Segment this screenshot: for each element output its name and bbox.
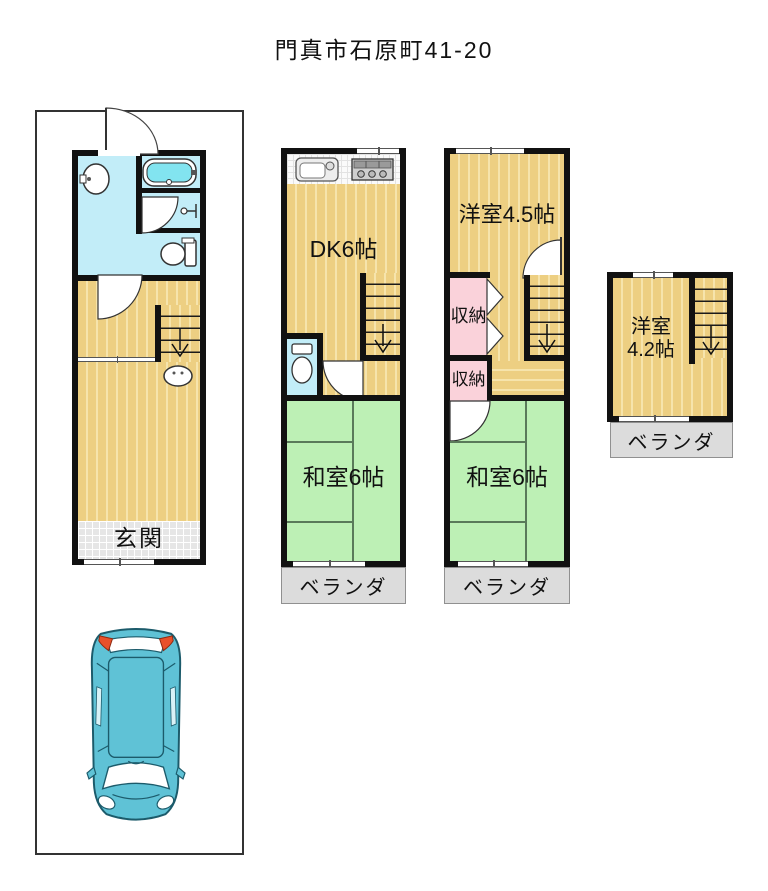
stairs-down-arrow-icon bbox=[169, 328, 191, 358]
floor4-balcony: ベランダ bbox=[610, 422, 733, 458]
door-arc-icon bbox=[142, 197, 178, 233]
folding-door-icon bbox=[487, 278, 505, 355]
kitchen-sink-icon bbox=[295, 157, 339, 182]
closet-lower-label: 収納 bbox=[450, 370, 487, 390]
balcony-label: ベランダ bbox=[628, 426, 716, 455]
bathtub-icon bbox=[142, 158, 198, 188]
closet-upper-label: 収納 bbox=[450, 306, 487, 327]
page-title: 門真市石原町41-20 bbox=[0, 31, 768, 65]
entrance-label: 玄関 bbox=[78, 525, 200, 551]
washbasin-icon bbox=[80, 162, 110, 196]
floor3-plan: 洋室4.5帖 収納 収納 bbox=[444, 148, 570, 567]
floor1-plan: 玄関 bbox=[72, 150, 206, 565]
floor4-plan: 洋室 4.2帖 bbox=[607, 272, 733, 422]
door-arc-icon bbox=[450, 401, 490, 441]
toilet-icon bbox=[158, 238, 198, 268]
balcony-label: ベランダ bbox=[300, 571, 388, 600]
western-room-label: 洋室4.5帖 bbox=[450, 202, 564, 227]
hand-basin-icon bbox=[162, 364, 194, 388]
stairs-down-arrow-icon bbox=[700, 326, 722, 356]
floorplan-page: 門真市石原町41-20 bbox=[0, 0, 768, 891]
floor3-balcony: ベランダ bbox=[444, 567, 570, 604]
western-room-label: 洋室 4.2帖 bbox=[613, 316, 689, 362]
floor2-plan: DK6帖 和室6帖 bbox=[281, 148, 406, 567]
dk-label: DK6帖 bbox=[287, 236, 400, 262]
car-illustration bbox=[86, 628, 186, 824]
door-arc-icon bbox=[98, 275, 142, 319]
faucet-icon bbox=[180, 202, 198, 220]
floor2-balcony: ベランダ bbox=[281, 567, 406, 604]
tatami-label: 和室6帖 bbox=[450, 464, 564, 490]
balcony-label: ベランダ bbox=[463, 571, 551, 600]
stairs-down-arrow-icon bbox=[536, 324, 558, 354]
stairs-down-arrow-icon bbox=[372, 324, 394, 354]
stove-icon bbox=[351, 158, 394, 181]
tatami-label: 和室6帖 bbox=[287, 464, 400, 490]
toilet-icon bbox=[289, 343, 315, 389]
door-arc-icon bbox=[523, 235, 561, 278]
entrance-door-arc-icon bbox=[100, 106, 158, 154]
